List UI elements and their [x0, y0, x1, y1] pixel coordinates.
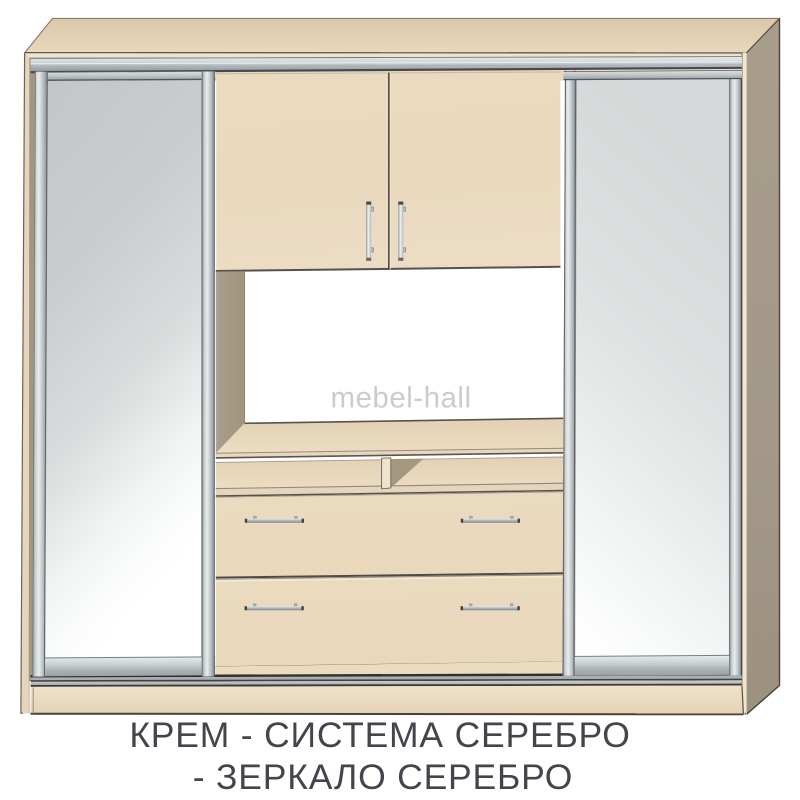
svg-text:КРЕМ - СИСТЕМА СЕРЕБРО: КРЕМ - СИСТЕМА СЕРЕБРО — [129, 715, 630, 755]
svg-text:mebel-hall: mebel-hall — [330, 382, 471, 415]
svg-text:- ЗЕРКАЛО СЕРЕБРО: - ЗЕРКАЛО СЕРЕБРО — [193, 757, 573, 797]
